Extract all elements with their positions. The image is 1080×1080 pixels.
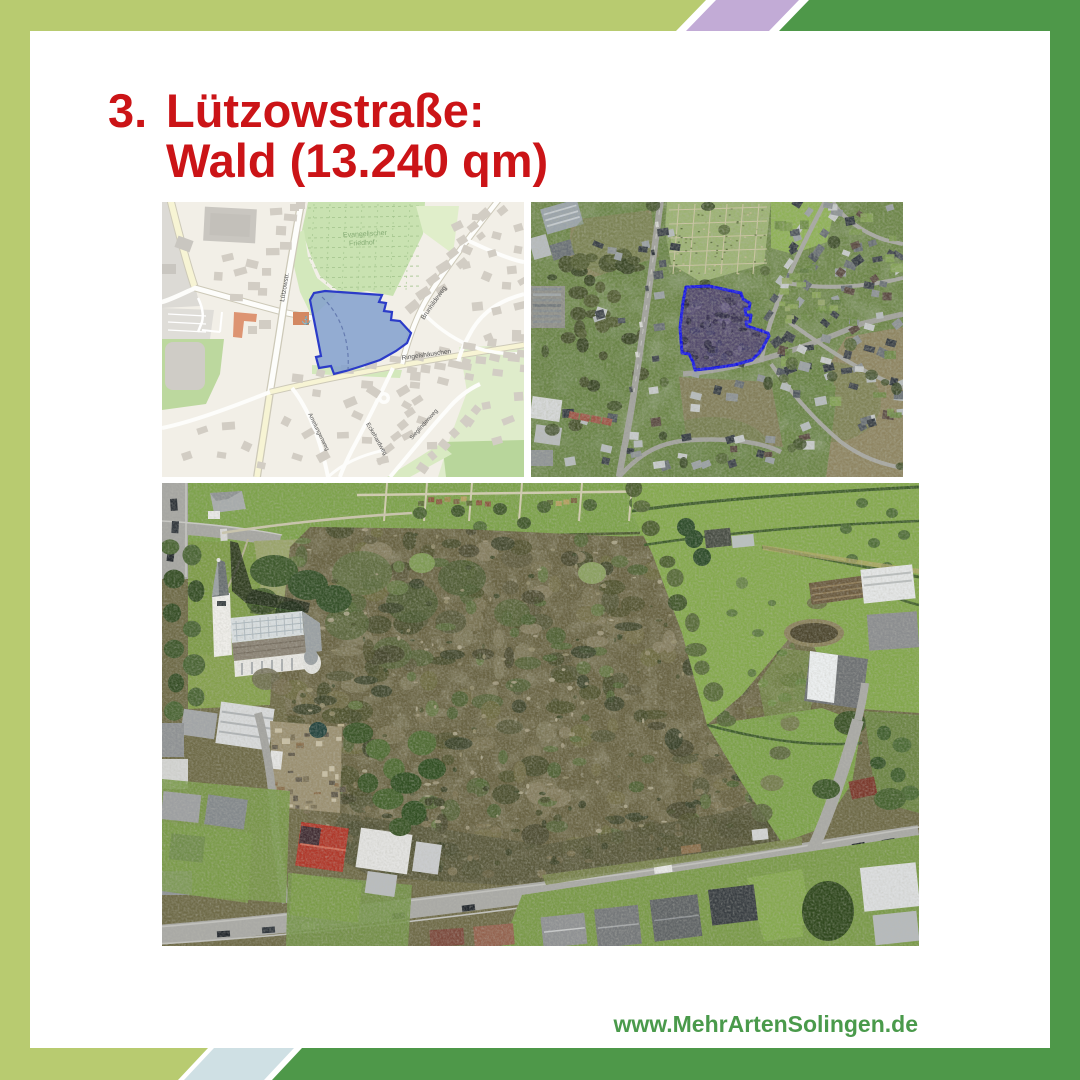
svg-text:⚓: ⚓: [301, 315, 311, 325]
svg-text:Friedhof: Friedhof: [349, 239, 375, 247]
